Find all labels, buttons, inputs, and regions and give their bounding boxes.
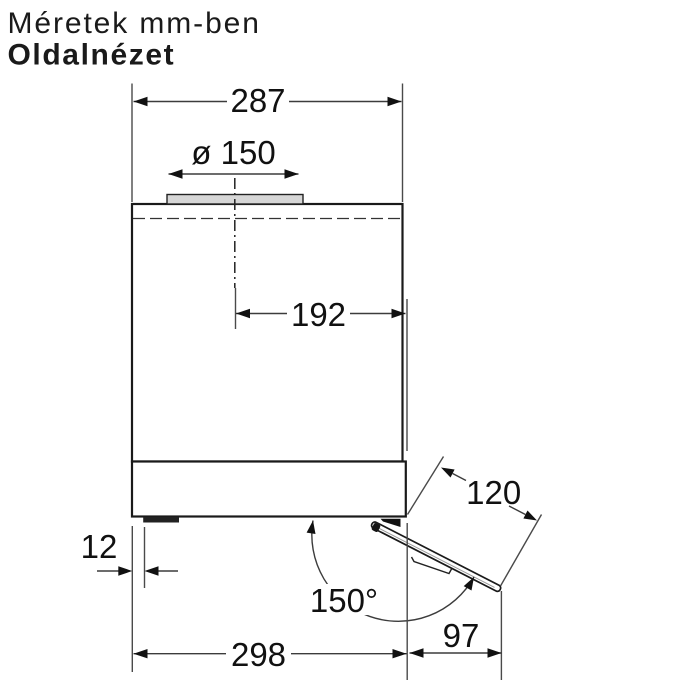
svg-text:192: 192 <box>291 296 346 333</box>
svg-text:120: 120 <box>466 474 521 511</box>
svg-text:298: 298 <box>231 636 286 673</box>
svg-text:97: 97 <box>443 617 480 654</box>
svg-text:Méretek mm-ben: Méretek mm-ben <box>8 7 261 40</box>
svg-text:Oldalnézet: Oldalnézet <box>8 39 176 72</box>
svg-text:150°: 150° <box>310 582 378 619</box>
svg-text:287: 287 <box>230 82 285 119</box>
svg-text:12: 12 <box>81 528 118 565</box>
svg-text:ø 150: ø 150 <box>191 134 275 171</box>
